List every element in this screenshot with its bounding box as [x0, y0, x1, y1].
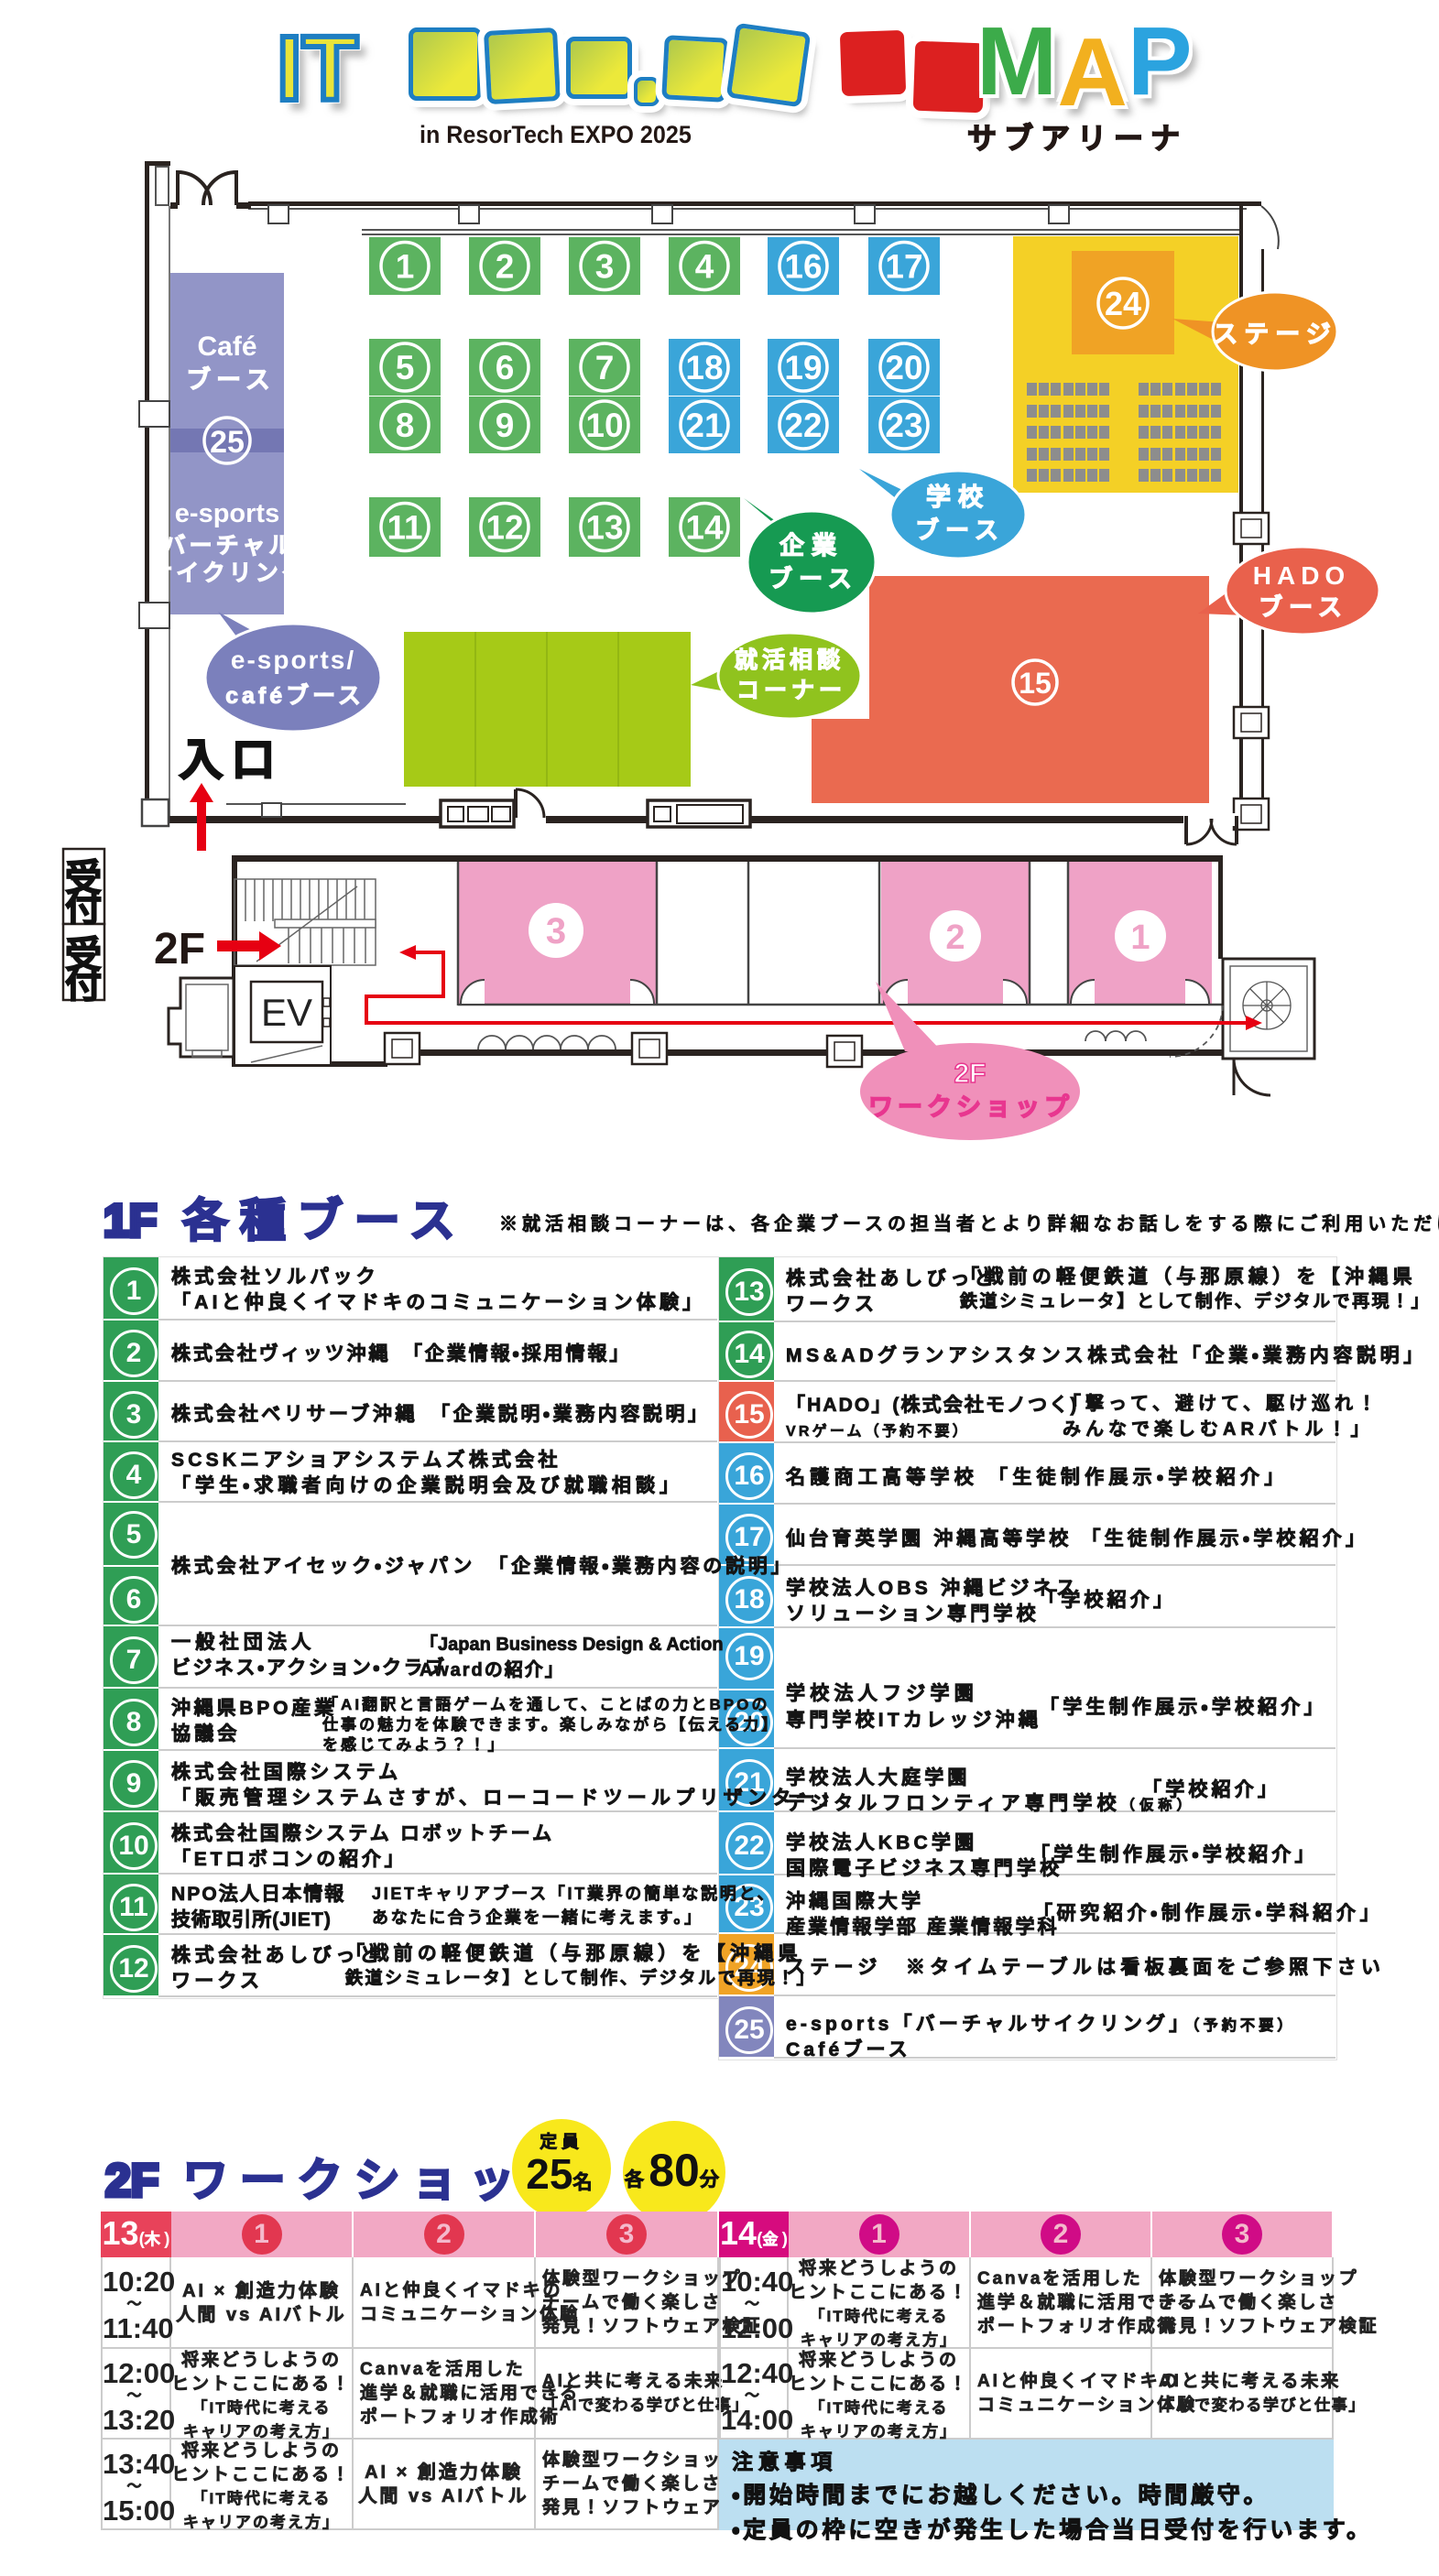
svg-text:14: 14	[685, 509, 724, 547]
svg-text:付: 付	[65, 965, 102, 1005]
svg-text:6: 6	[496, 349, 515, 386]
svg-text:コーナー: コーナー	[736, 678, 846, 703]
svg-text:サイクリング: サイクリング	[149, 560, 309, 586]
svg-text:8: 8	[396, 407, 415, 444]
svg-text:就活相談: 就活相談	[735, 647, 845, 673]
svg-text:20: 20	[885, 349, 922, 386]
svg-text:HADO: HADO	[1253, 561, 1350, 590]
svg-text:3: 3	[546, 911, 566, 951]
svg-text:21: 21	[685, 407, 723, 444]
svg-text:caféブース: caféブース	[225, 682, 365, 709]
svg-text:ワークショップ: ワークショップ	[868, 1093, 1074, 1121]
svg-text:17: 17	[885, 248, 922, 286]
svg-text:付: 付	[65, 888, 102, 929]
svg-text:2F: 2F	[154, 925, 205, 973]
svg-text:企業: 企業	[779, 532, 844, 560]
svg-text:e-sports: e-sports	[175, 499, 279, 528]
svg-text:4: 4	[695, 248, 714, 286]
svg-text:入口: 入口	[180, 735, 284, 784]
svg-text:学校: 学校	[926, 483, 990, 511]
svg-text:ブース: ブース	[1259, 593, 1348, 621]
svg-text:22: 22	[784, 407, 822, 444]
svg-text:e-sports/: e-sports/	[231, 646, 355, 674]
svg-text:25: 25	[210, 425, 245, 460]
svg-text:15: 15	[1019, 667, 1052, 700]
svg-text:18: 18	[685, 349, 723, 386]
svg-text:ブース: ブース	[915, 516, 1005, 544]
svg-text:10: 10	[585, 407, 623, 444]
svg-text:12: 12	[485, 509, 523, 547]
svg-text:7: 7	[595, 349, 615, 386]
svg-text:11: 11	[387, 509, 422, 547]
svg-text:Café: Café	[197, 332, 256, 362]
svg-text:バーチャル: バーチャル	[163, 533, 296, 559]
svg-text:1: 1	[1130, 918, 1150, 957]
svg-text:2: 2	[496, 248, 515, 286]
svg-text:16: 16	[784, 248, 822, 286]
svg-text:ブース: ブース	[186, 365, 276, 394]
svg-text:2: 2	[945, 918, 965, 957]
svg-text:ブース: ブース	[769, 565, 858, 592]
svg-text:3: 3	[595, 248, 615, 286]
svg-text:EV: EV	[261, 991, 312, 1034]
svg-text:ステージ: ステージ	[1213, 321, 1336, 348]
svg-text:13: 13	[585, 509, 623, 547]
svg-text:1: 1	[396, 248, 415, 286]
svg-text:23: 23	[885, 407, 922, 444]
svg-text:19: 19	[784, 349, 822, 386]
svg-text:5: 5	[396, 349, 415, 386]
svg-text:2F: 2F	[954, 1059, 986, 1089]
svg-text:24: 24	[1105, 285, 1141, 322]
svg-text:9: 9	[496, 407, 515, 444]
